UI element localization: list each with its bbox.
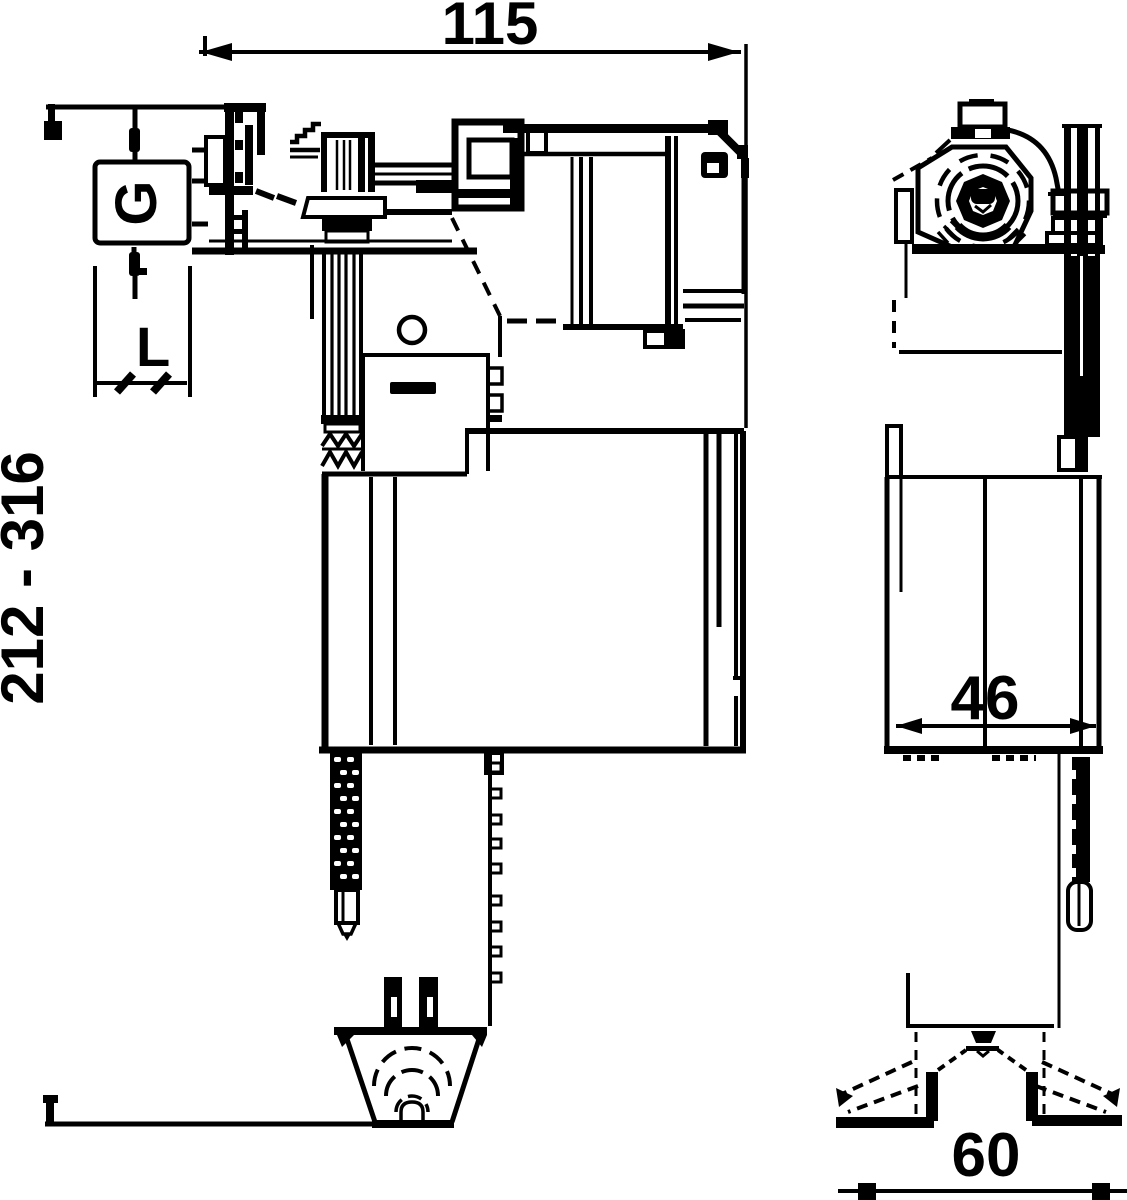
- svg-text:G: G: [104, 180, 169, 225]
- svg-text:46: 46: [951, 664, 1020, 733]
- svg-text:60: 60: [952, 1121, 1021, 1190]
- svg-text:212 - 316: 212 - 316: [0, 451, 56, 705]
- svg-text:115: 115: [442, 0, 539, 57]
- svg-text:L: L: [136, 315, 170, 378]
